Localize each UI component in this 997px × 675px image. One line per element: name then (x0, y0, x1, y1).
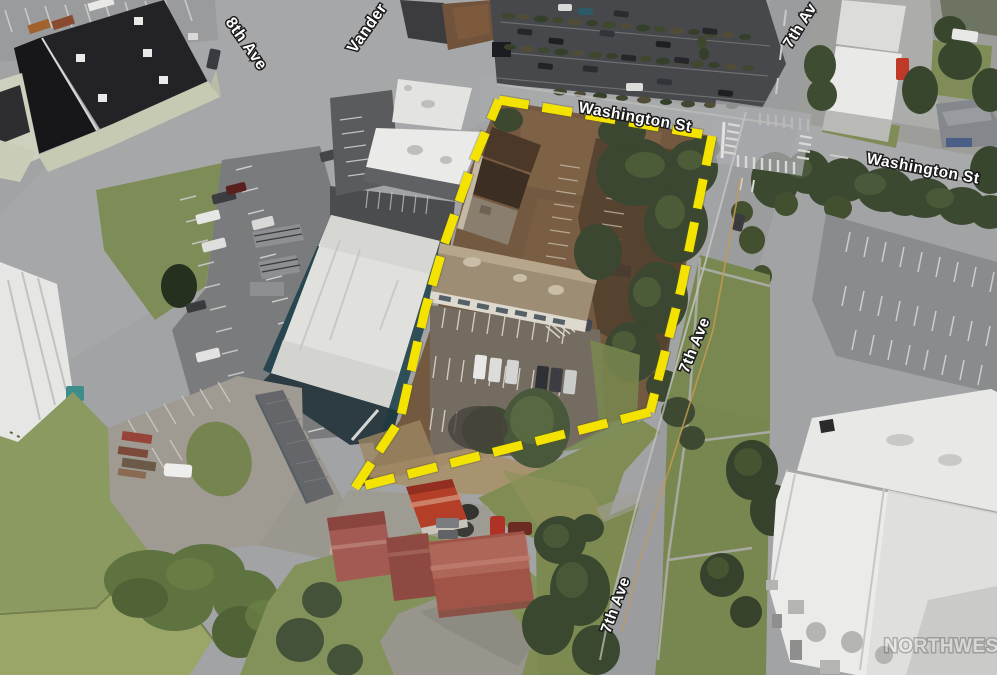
svg-text:NORTHWEST: NORTHWEST (884, 636, 997, 657)
